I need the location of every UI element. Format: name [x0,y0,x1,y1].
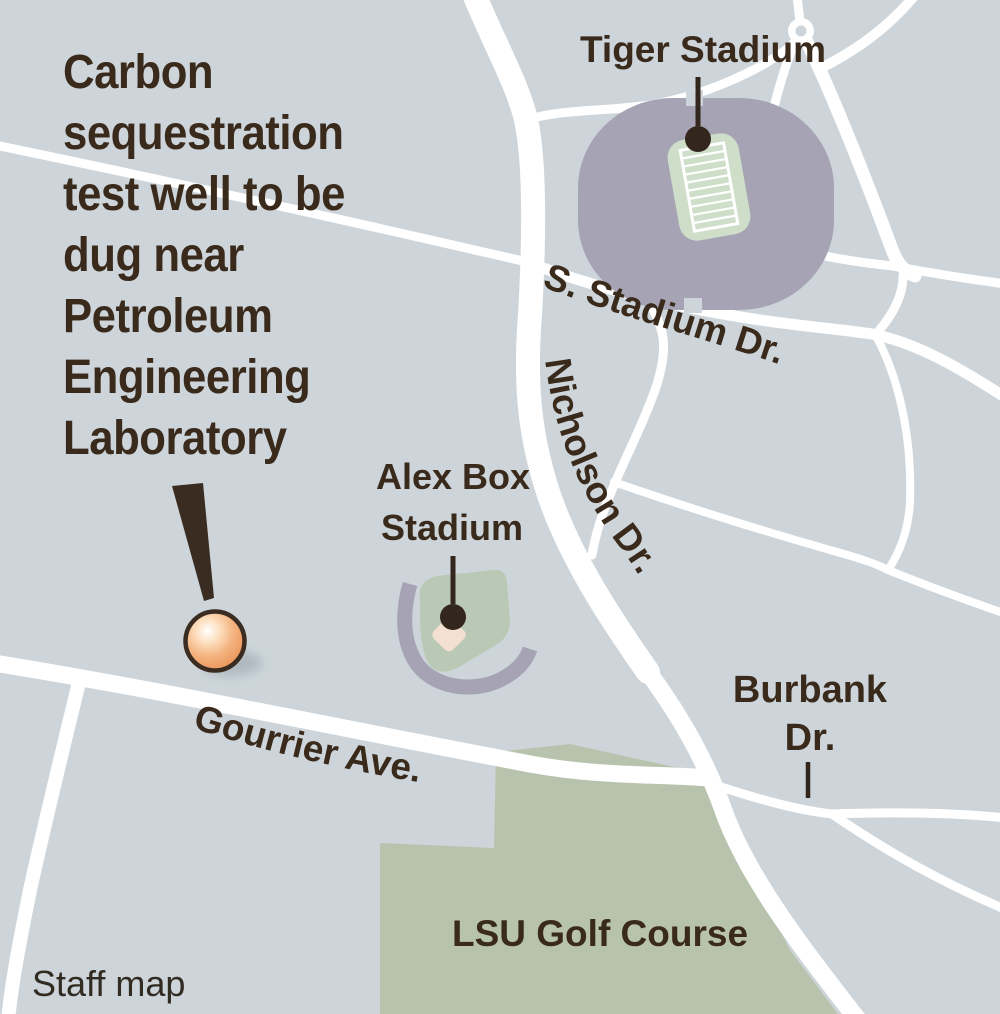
alex-box-label-line2: Stadium [381,507,523,548]
tiger-callout-dot [685,126,711,152]
map-headline: Carbon sequestration test well to be dug… [63,42,445,469]
burbank-label-line2: Dr. [785,717,836,759]
headline-line: dug near [63,225,445,286]
golf-course-label: LSU Golf Course [452,913,748,954]
burbank-label-line1: Burbank [733,669,888,711]
well-marker-sphere [186,612,245,671]
headline-line: sequestration [63,103,445,164]
credit-label: Staff map [32,963,185,1004]
staff-map: S. Stadium Dr. Nicholson Dr. Gourrier Av… [0,0,1000,1014]
tiger-stadium-label: Tiger Stadium [580,29,826,70]
headline-line: Laboratory [63,408,445,469]
headline-line: Engineering [63,347,445,408]
headline-line: Petroleum [63,286,445,347]
alex-box-callout-dot [440,604,466,630]
headline-line: test well to be [63,164,445,225]
headline-line: Carbon [63,42,445,103]
